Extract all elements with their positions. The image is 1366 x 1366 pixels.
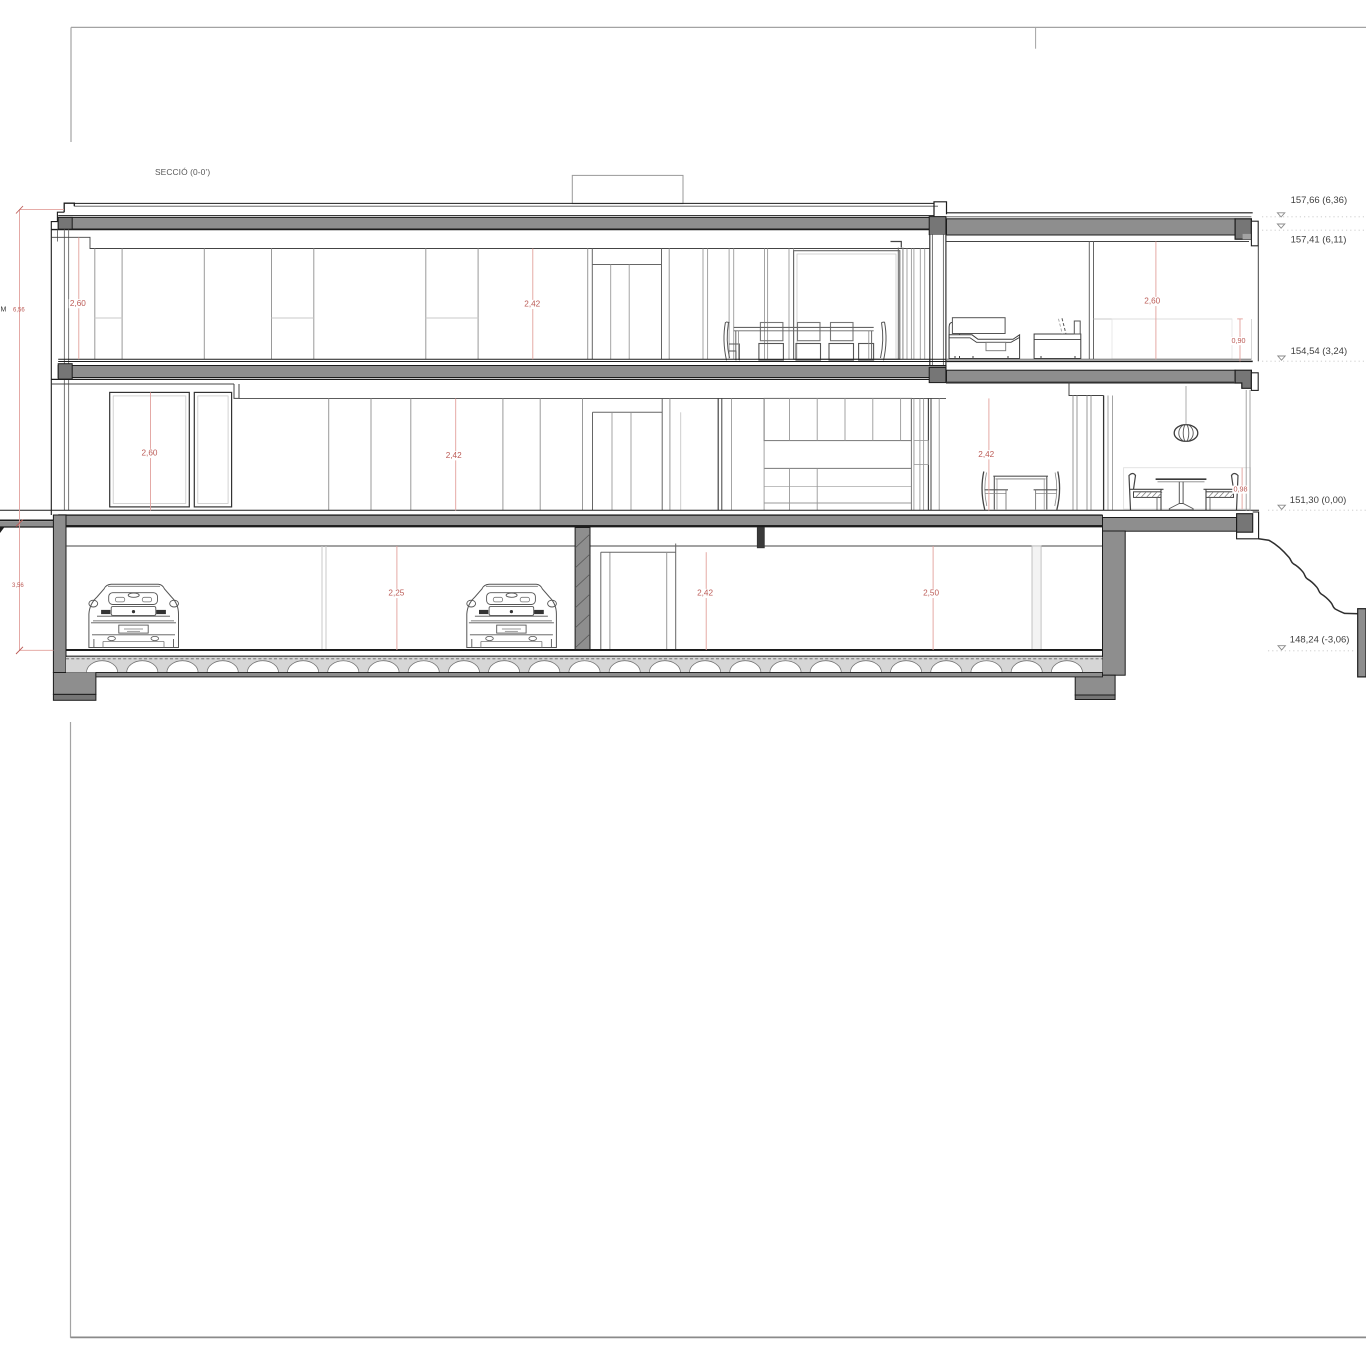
svg-text:2,42: 2,42 [524,300,540,309]
svg-text:6,56: 6,56 [13,308,25,314]
svg-text:2,60: 2,60 [70,299,86,308]
svg-text:157,41 (6,11): 157,41 (6,11) [1291,234,1347,245]
svg-text:0,98: 0,98 [1234,485,1248,494]
svg-text:M: M [1,307,7,314]
svg-text:157,66 (6,36): 157,66 (6,36) [1291,195,1348,206]
svg-text:2,42: 2,42 [446,451,462,460]
svg-text:2,42: 2,42 [697,589,713,598]
svg-text:154,54 (3,24): 154,54 (3,24) [1291,346,1348,357]
svg-text:3,56: 3,56 [12,583,24,589]
svg-text:0,90: 0,90 [1232,336,1246,345]
svg-text:2,50: 2,50 [923,589,939,598]
svg-text:2,42: 2,42 [978,450,994,459]
svg-text:SECCIÓ (0-0’): SECCIÓ (0-0’) [155,167,210,177]
svg-text:2,60: 2,60 [1144,297,1160,306]
svg-text:151,30 (0,00): 151,30 (0,00) [1290,495,1347,506]
svg-text:2,60: 2,60 [142,449,158,458]
svg-text:148,24 (-3,06): 148,24 (-3,06) [1290,634,1350,645]
svg-text:2,25: 2,25 [388,589,404,598]
